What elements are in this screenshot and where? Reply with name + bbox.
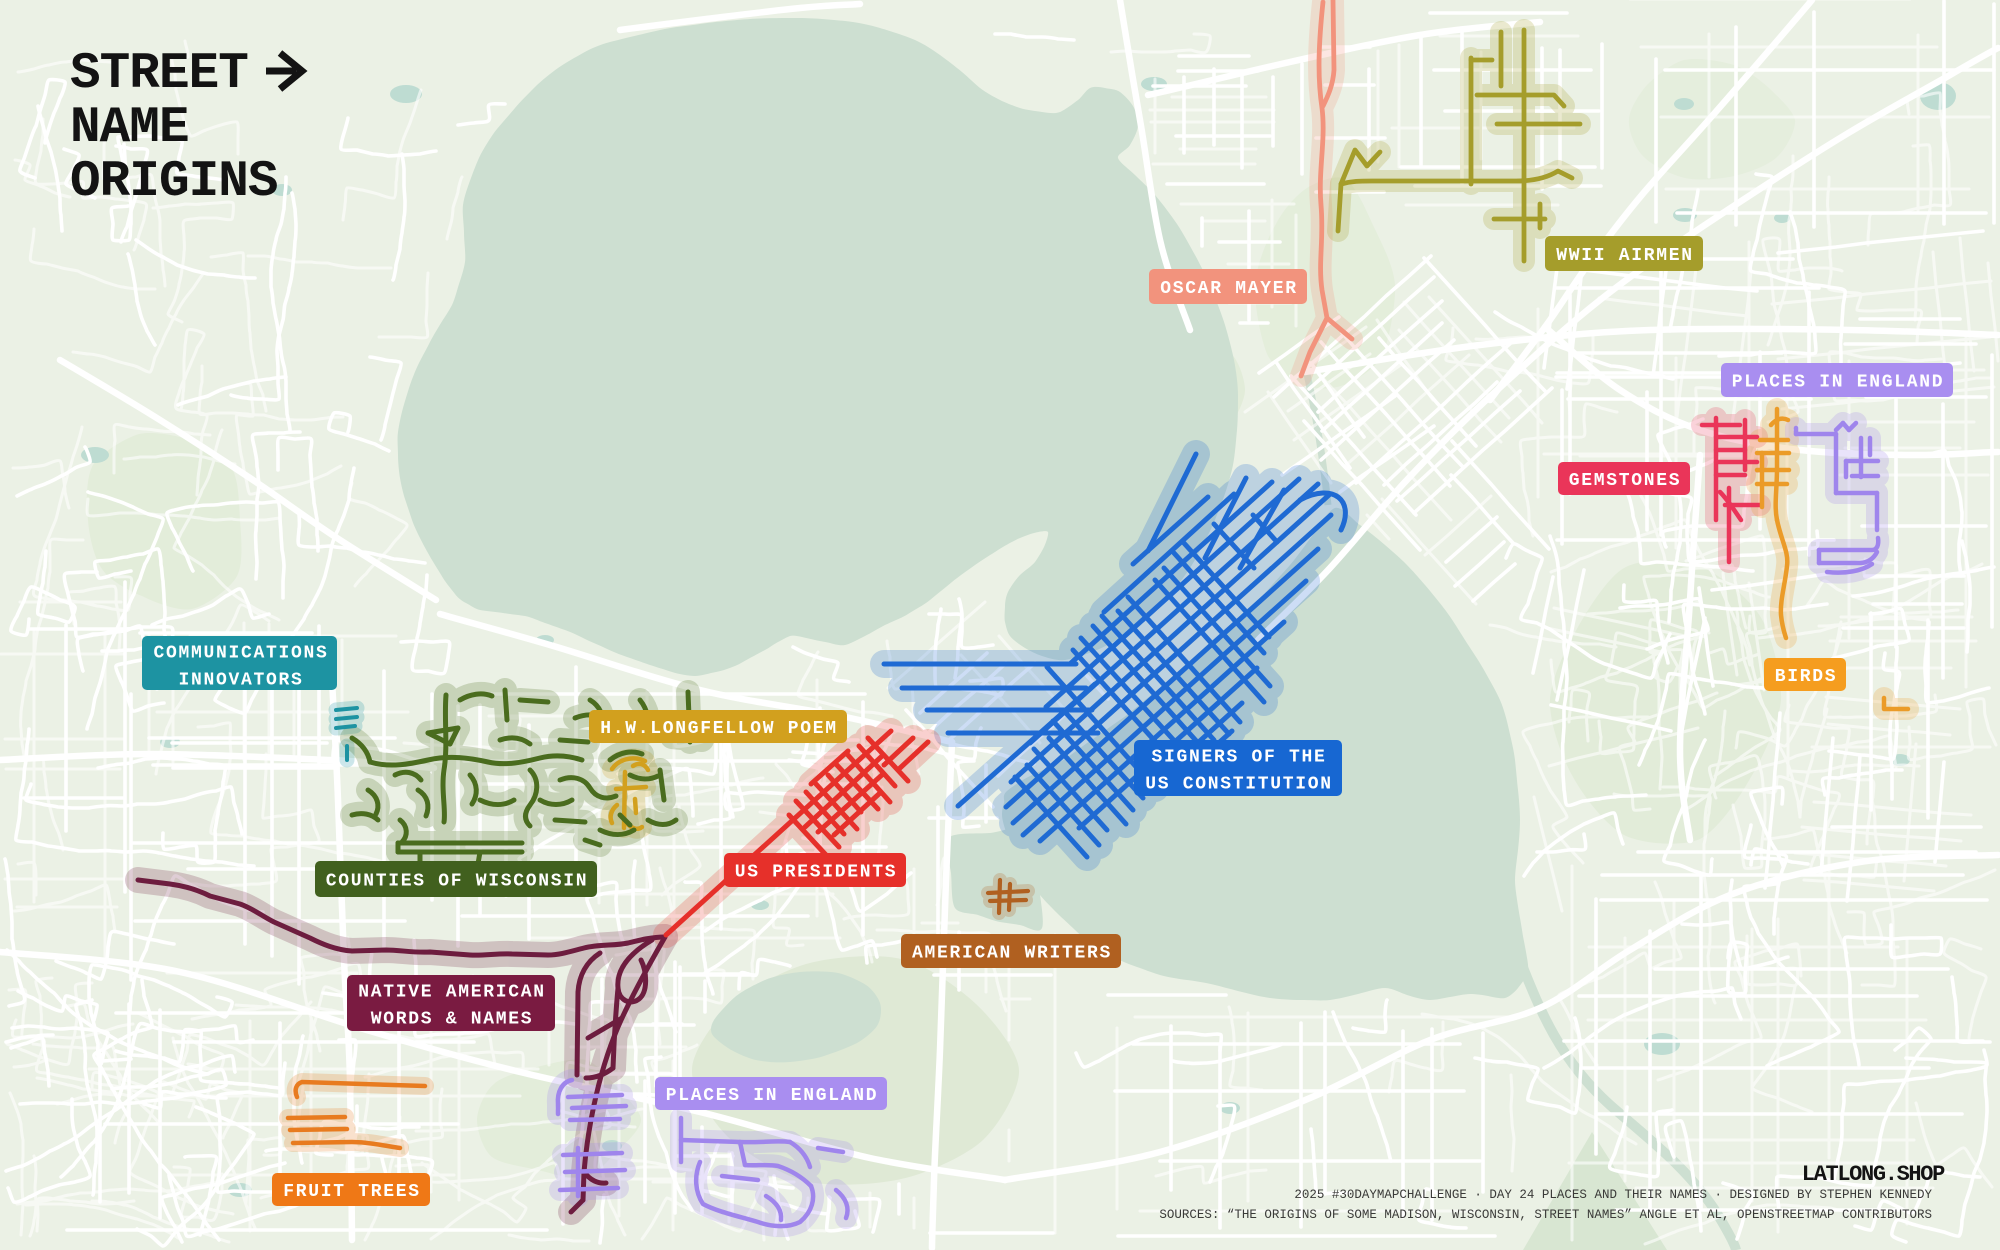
svg-text:H.W.LONGFELLOW POEM: H.W.LONGFELLOW POEM (600, 719, 838, 739)
svg-text:LATLONG.SHOP: LATLONG.SHOP (1802, 1162, 1945, 1187)
svg-text:COMMUNICATIONS: COMMUNICATIONS (153, 644, 328, 664)
svg-text:2025 #30DAYMAPCHALLENGE · DAY: 2025 #30DAYMAPCHALLENGE · DAY 24 PLACES … (1294, 1188, 1932, 1202)
svg-text:PLACES IN ENGLAND: PLACES IN ENGLAND (1732, 373, 1945, 393)
svg-text:COUNTIES OF WISCONSIN: COUNTIES OF WISCONSIN (326, 872, 589, 892)
svg-text:FRUIT TREES: FRUIT TREES (283, 1182, 421, 1202)
svg-text:NAME: NAME (70, 100, 189, 157)
svg-text:WWII AIRMEN: WWII AIRMEN (1556, 246, 1694, 266)
svg-text:INNOVATORS: INNOVATORS (178, 671, 303, 691)
svg-text:GEMSTONES: GEMSTONES (1569, 471, 1682, 491)
svg-text:AMERICAN WRITERS: AMERICAN WRITERS (912, 944, 1112, 964)
svg-text:WORDS & NAMES: WORDS & NAMES (371, 1010, 534, 1030)
svg-text:ORIGINS: ORIGINS (70, 154, 278, 211)
svg-text:US PRESIDENTS: US PRESIDENTS (735, 863, 898, 883)
svg-text:PLACES IN ENGLAND: PLACES IN ENGLAND (666, 1086, 879, 1106)
svg-text:SIGNERS OF THE: SIGNERS OF THE (1151, 748, 1326, 768)
svg-text:US CONSTITUTION: US CONSTITUTION (1145, 775, 1333, 795)
svg-text:BIRDS: BIRDS (1775, 667, 1838, 687)
svg-text:SOURCES: “THE ORIGINS OF SOME: SOURCES: “THE ORIGINS OF SOME MADISON, W… (1159, 1208, 1932, 1222)
svg-text:STREET: STREET (70, 46, 248, 103)
svg-text:OSCAR MAYER: OSCAR MAYER (1160, 279, 1298, 299)
svg-text:NATIVE AMERICAN: NATIVE AMERICAN (358, 983, 546, 1003)
